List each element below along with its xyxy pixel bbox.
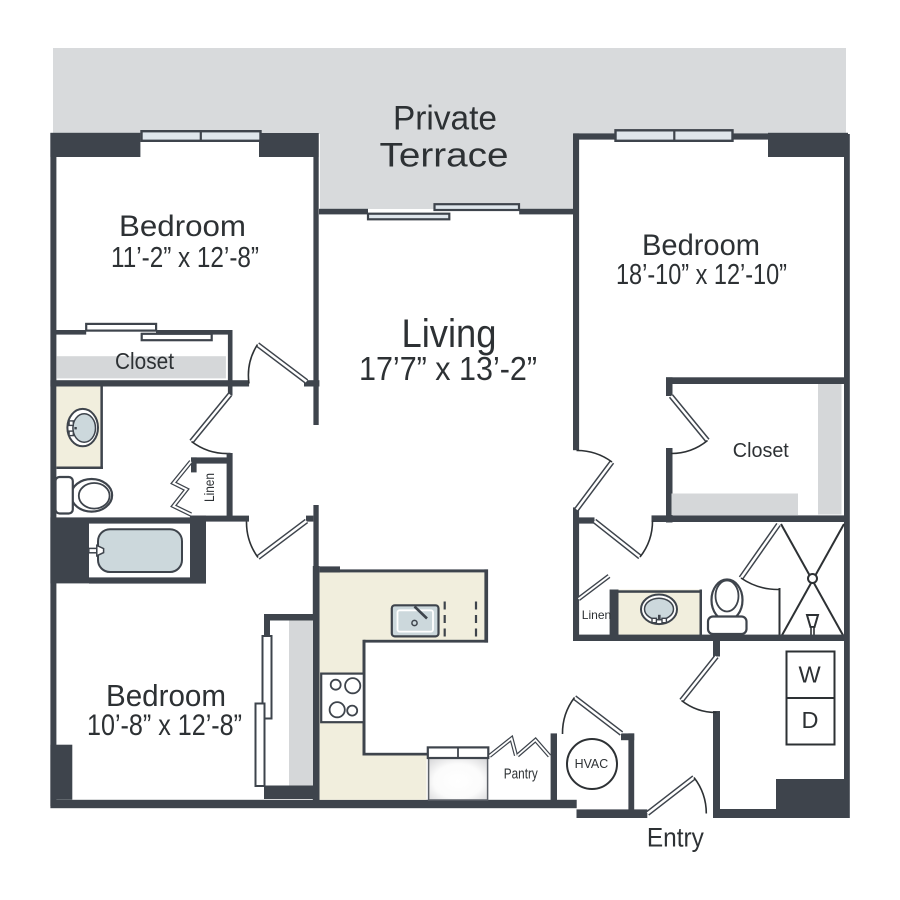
svg-text:Linen: Linen [582,608,612,622]
svg-text:Bedroom: Bedroom [119,210,246,243]
svg-text:Closet: Closet [115,348,175,374]
svg-text:Bedroom: Bedroom [106,678,226,713]
svg-text:17’7” x 13’-2”: 17’7” x 13’-2” [359,350,537,387]
svg-text:11’-2” x 12’-8”: 11’-2” x 12’-8” [111,242,259,274]
svg-text:W: W [799,661,822,687]
svg-text:Private: Private [393,100,497,138]
svg-text:Closet: Closet [733,439,789,462]
svg-text:Entry: Entry [647,823,704,853]
svg-text:Terrace: Terrace [380,137,509,175]
svg-text:HVAC: HVAC [575,756,609,771]
svg-text:18’-10” x 12’-10”: 18’-10” x 12’-10” [616,259,787,291]
svg-text:Pantry: Pantry [504,766,539,782]
svg-text:10’-8” x 12’-8”: 10’-8” x 12’-8” [87,709,242,742]
svg-text:Linen: Linen [202,473,217,502]
svg-text:D: D [802,707,819,733]
svg-text:Bedroom: Bedroom [642,229,760,262]
